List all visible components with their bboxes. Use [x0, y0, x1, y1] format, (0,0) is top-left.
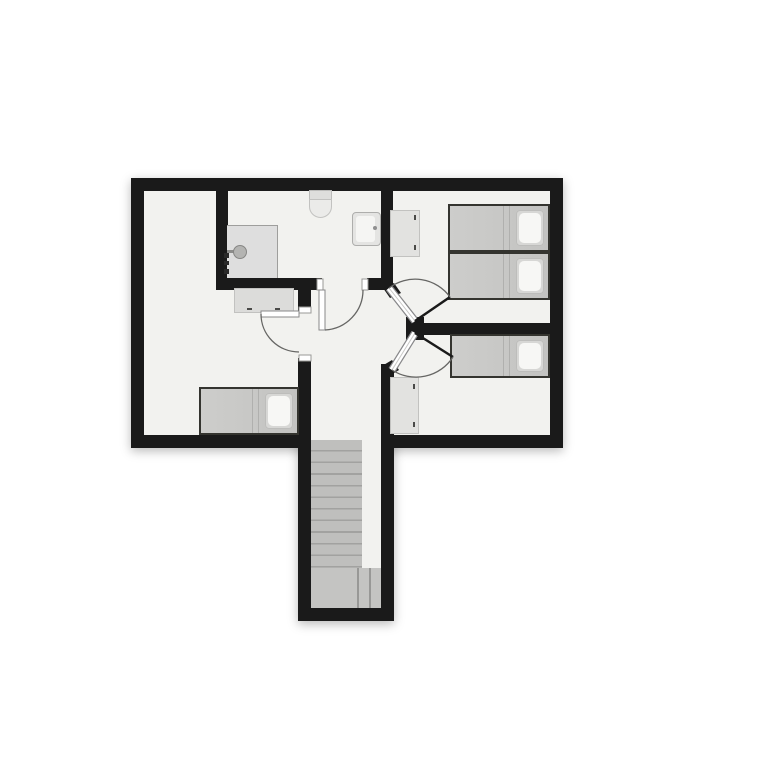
top-right-door-slab-line: [389, 288, 415, 321]
doors-overlay: [0, 0, 766, 765]
floor-plan: [0, 0, 766, 765]
door-jamb: [299, 355, 311, 361]
middle-right-door-slab-line: [392, 333, 415, 370]
bathroom-door-arc: [325, 290, 363, 330]
door-jamb: [362, 279, 368, 290]
middle-right-door-open-line: [415, 333, 453, 357]
left-bedroom-door-leaf: [261, 311, 299, 317]
top-right-door-open-line: [415, 297, 450, 321]
bathroom-door-leaf: [319, 290, 325, 330]
door-jamb: [317, 279, 323, 290]
left-bedroom-door-arc: [261, 314, 299, 352]
door-jamb: [299, 307, 311, 313]
